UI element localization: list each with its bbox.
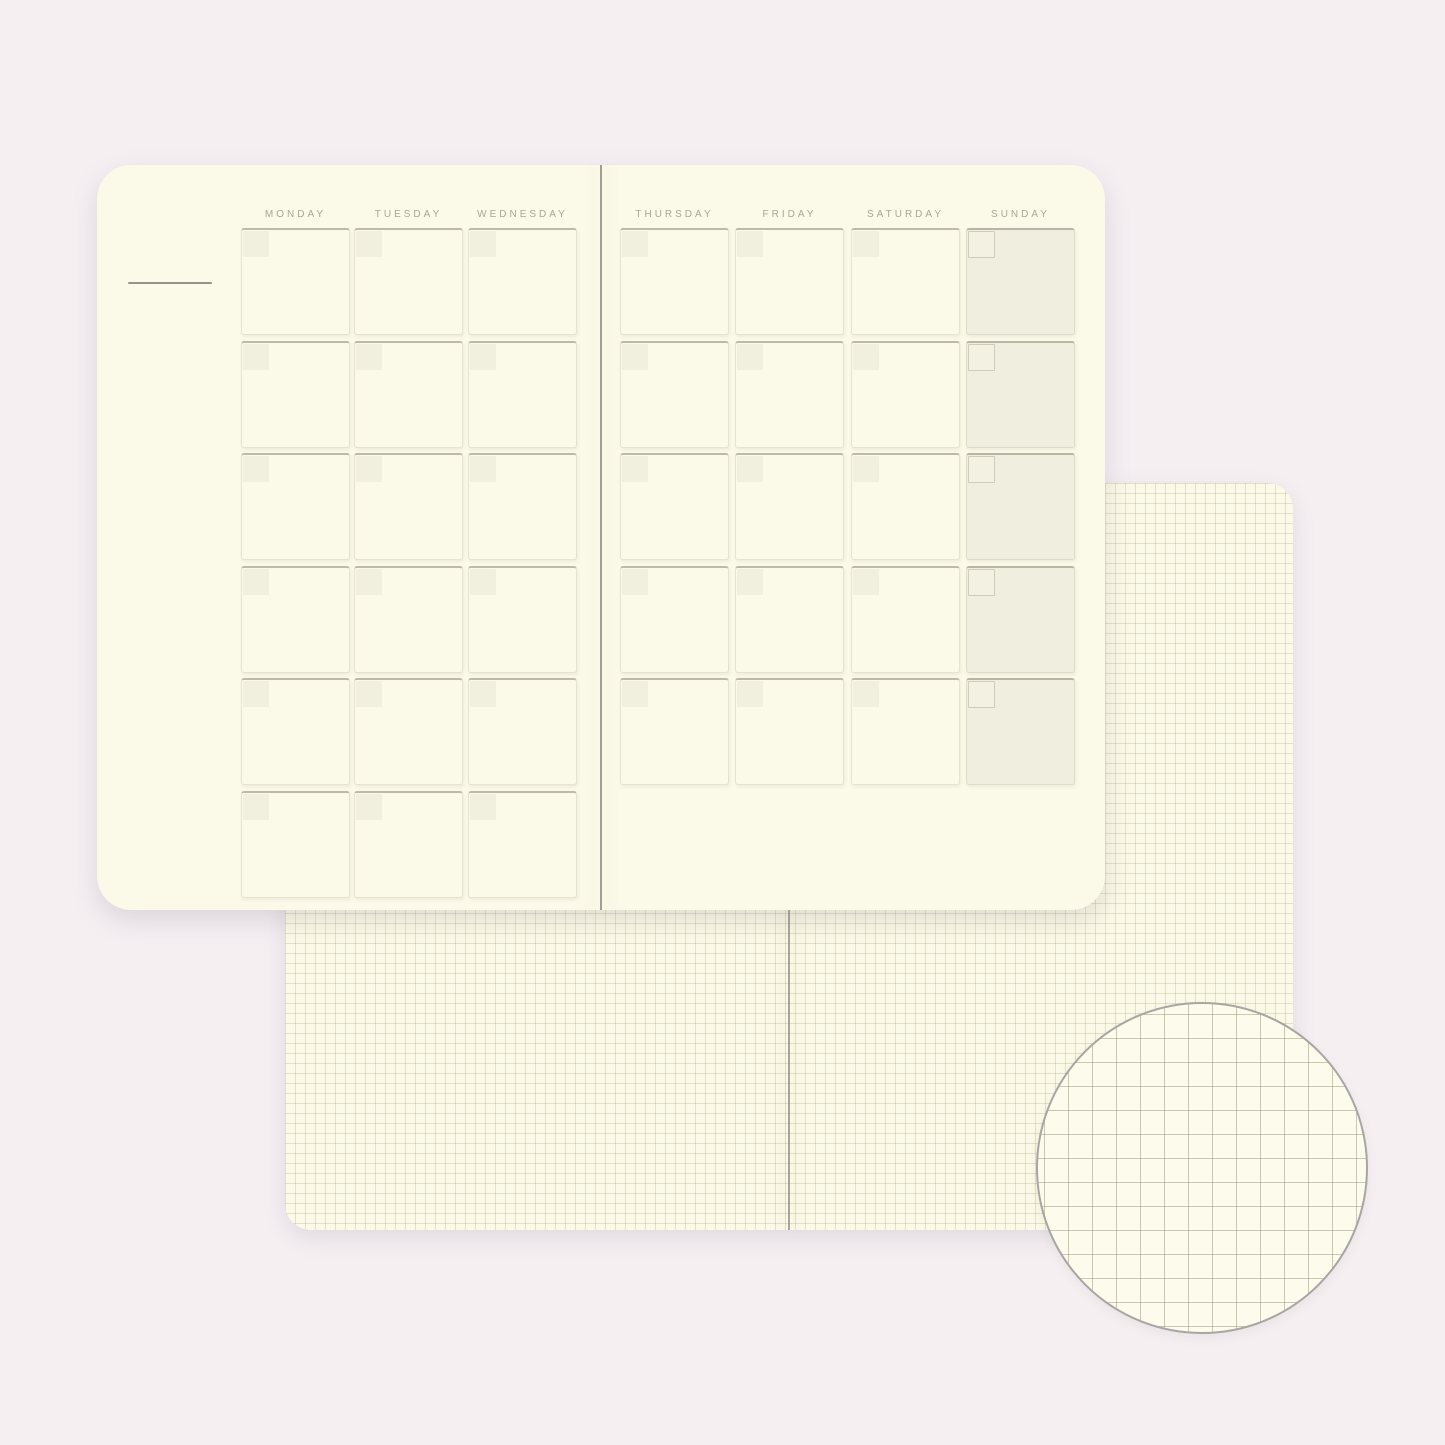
calendar-day-cell <box>851 678 960 785</box>
date-number-box <box>737 681 763 707</box>
date-number-box <box>853 344 879 370</box>
calendar-day-cell <box>468 453 577 560</box>
calendar-day-cell <box>620 228 729 335</box>
date-number-box <box>622 681 648 707</box>
calendar-day-cell <box>620 453 729 560</box>
calendar-day-cell <box>241 566 350 673</box>
calendar-day-cell <box>241 453 350 560</box>
calendar-day-cell <box>966 341 1075 448</box>
date-number-box <box>968 456 995 483</box>
day-label: FRIDAY <box>735 209 844 220</box>
date-number-box <box>356 794 382 820</box>
day-column-tuesday: TUESDAY <box>354 165 463 910</box>
calendar-day-cell <box>735 678 844 785</box>
day-column-friday: FRIDAY <box>735 165 844 910</box>
day-label: WEDNESDAY <box>468 209 577 220</box>
date-number-box <box>737 456 763 482</box>
date-number-box <box>470 344 496 370</box>
date-number-box <box>968 344 995 371</box>
date-number-box <box>356 456 382 482</box>
grid-detail-magnifier <box>1036 1002 1368 1334</box>
date-number-box <box>737 569 763 595</box>
date-number-box <box>968 569 995 596</box>
date-number-box <box>470 681 496 707</box>
calendar-day-cell <box>241 341 350 448</box>
calendar-day-cell <box>966 453 1075 560</box>
date-number-box <box>622 231 648 257</box>
day-column-sunday: SUNDAY <box>966 165 1075 910</box>
date-number-box <box>622 456 648 482</box>
calendar-day-cell <box>354 678 463 785</box>
calendar-day-cell <box>241 678 350 785</box>
date-number-box <box>243 344 269 370</box>
date-number-box <box>968 681 995 708</box>
calendar-day-cell <box>354 228 463 335</box>
day-column-thursday: THURSDAY <box>620 165 729 910</box>
calendar-day-cell <box>468 341 577 448</box>
date-number-box <box>622 344 648 370</box>
calendar-day-cell <box>468 678 577 785</box>
calendar-day-cell <box>468 566 577 673</box>
date-number-box <box>968 231 995 258</box>
calendar-day-cell <box>851 453 960 560</box>
date-number-box <box>243 456 269 482</box>
month-fill-in-line <box>128 282 212 284</box>
calendar-day-cell <box>468 791 577 898</box>
date-number-box <box>853 231 879 257</box>
date-number-box <box>737 344 763 370</box>
calendar-day-cell <box>735 453 844 560</box>
date-number-box <box>470 231 496 257</box>
calendar-day-cell <box>468 228 577 335</box>
date-number-box <box>853 569 879 595</box>
planner-product-mockup: MONDAYTUESDAYWEDNESDAYTHURSDAYFRIDAYSATU… <box>0 0 1445 1445</box>
day-column-saturday: SATURDAY <box>851 165 960 910</box>
day-label: SUNDAY <box>966 209 1075 220</box>
date-number-box <box>243 681 269 707</box>
day-column-monday: MONDAY <box>241 165 350 910</box>
date-number-box <box>737 231 763 257</box>
date-number-box <box>853 456 879 482</box>
date-number-box <box>853 681 879 707</box>
date-number-box <box>243 794 269 820</box>
calendar-day-cell <box>851 228 960 335</box>
calendar-day-cell <box>620 566 729 673</box>
date-number-box <box>356 569 382 595</box>
calendar-day-cell <box>966 228 1075 335</box>
calendar-day-cell <box>354 791 463 898</box>
day-label: SATURDAY <box>851 209 960 220</box>
date-number-box <box>470 456 496 482</box>
monthly-planner-spread: MONDAYTUESDAYWEDNESDAYTHURSDAYFRIDAYSATU… <box>97 165 1105 910</box>
date-number-box <box>356 344 382 370</box>
calendar-day-cell <box>354 453 463 560</box>
calendar-day-cell <box>966 678 1075 785</box>
planner-spread-spine <box>600 165 602 910</box>
date-number-box <box>470 794 496 820</box>
calendar-day-cell <box>851 566 960 673</box>
calendar-day-cell <box>735 228 844 335</box>
day-label: TUESDAY <box>354 209 463 220</box>
date-number-box <box>356 681 382 707</box>
calendar-day-cell <box>620 341 729 448</box>
calendar-day-cell <box>851 341 960 448</box>
date-number-box <box>243 569 269 595</box>
calendar-day-cell <box>354 341 463 448</box>
date-number-box <box>470 569 496 595</box>
date-number-box <box>622 569 648 595</box>
date-number-box <box>356 231 382 257</box>
date-number-box <box>243 231 269 257</box>
calendar-day-cell <box>735 566 844 673</box>
day-label: MONDAY <box>241 209 350 220</box>
calendar-day-cell <box>966 566 1075 673</box>
calendar-day-cell <box>620 678 729 785</box>
calendar-day-cell <box>354 566 463 673</box>
calendar-day-cell <box>241 228 350 335</box>
calendar-day-cell <box>735 341 844 448</box>
day-label: THURSDAY <box>620 209 729 220</box>
day-column-wednesday: WEDNESDAY <box>468 165 577 910</box>
calendar-day-cell <box>241 791 350 898</box>
